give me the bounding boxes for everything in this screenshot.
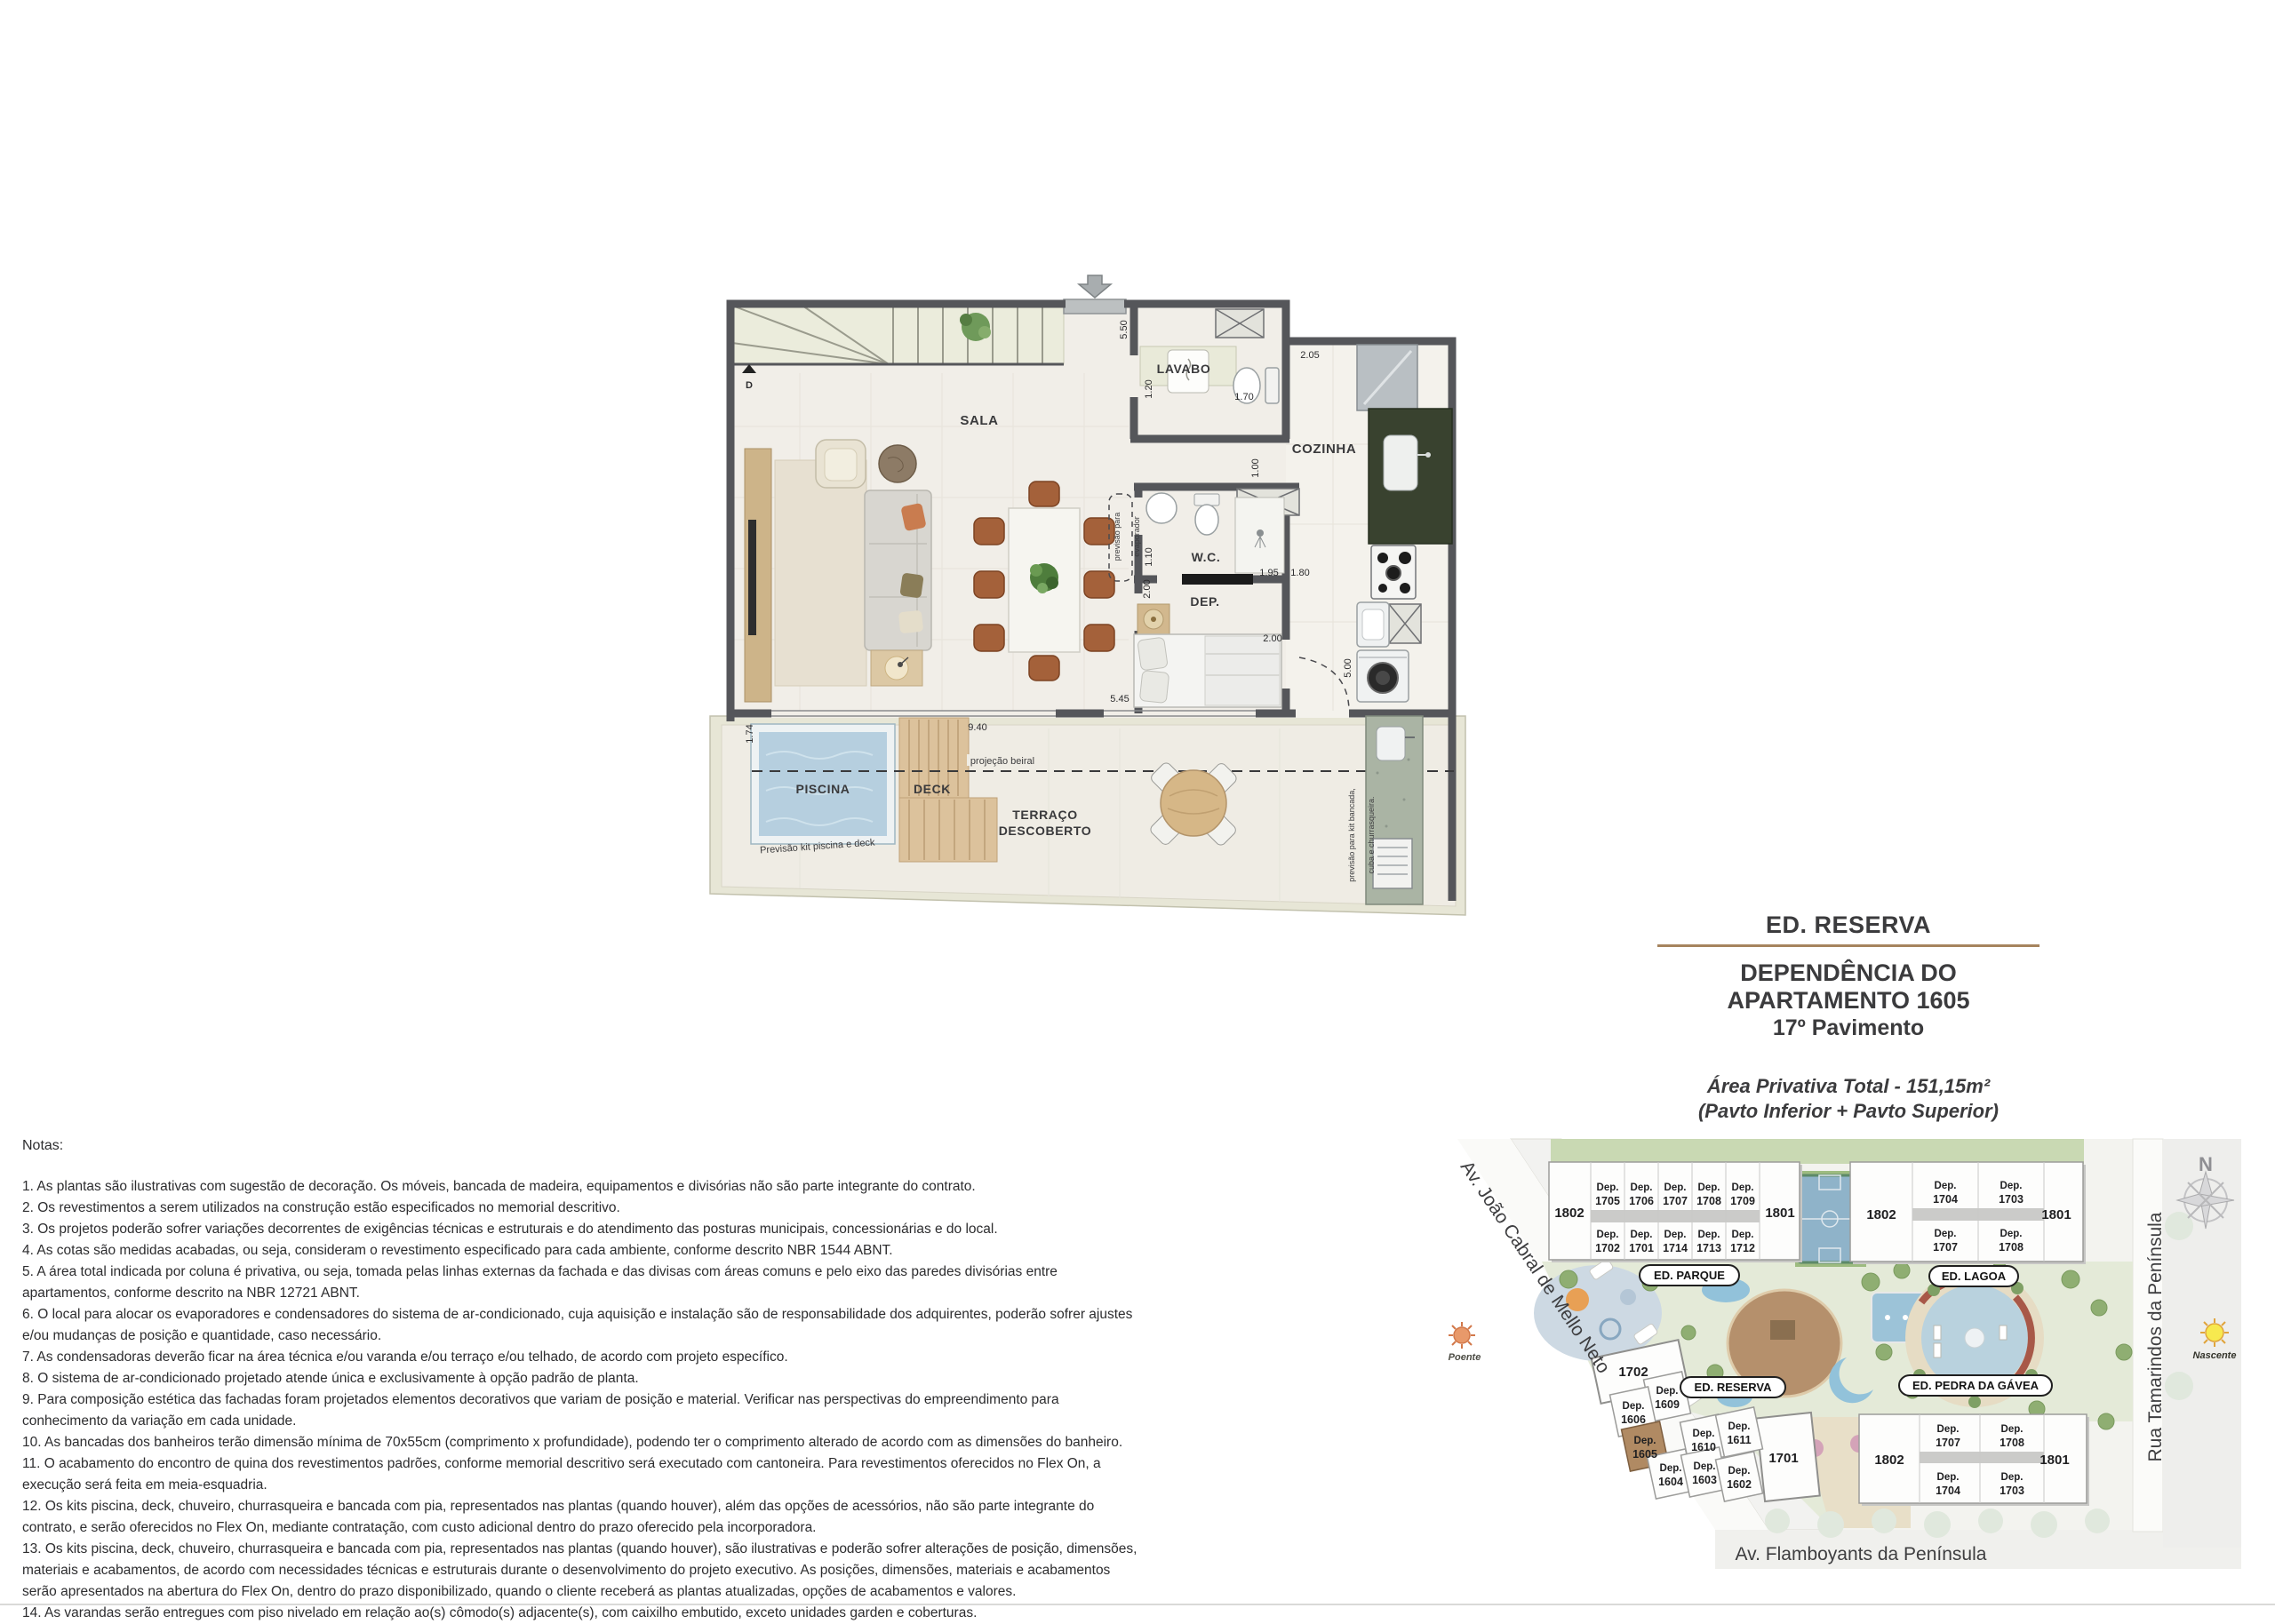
label-ed-parque: ED. PARQUE <box>1654 1269 1725 1282</box>
dep-prefix: Dep. <box>1656 1386 1679 1397</box>
note-item: 13. Os kits piscina, deck, chuveiro, chu… <box>22 1539 1140 1603</box>
room-label-dep: DEP. <box>1190 594 1219 609</box>
dep-prefix: Dep. <box>1937 1424 1960 1435</box>
dim-200a: 2.00 <box>1142 579 1153 598</box>
bbq-note-line2: cuba e churrasqueira. <box>1367 796 1376 873</box>
site-map: 1802 1801 Dep. 1705 Dep. 1706 Dep. 1707 … <box>1422 1128 2275 1609</box>
floorplan-sheet: { "colors": { "wall": "#55565a", "floor"… <box>0 0 2275 1609</box>
dep-prefix: Dep. <box>2000 1181 2023 1191</box>
entry-landing <box>1064 299 1126 314</box>
notes-block: Notas: 1. As plantas são ilustrativas co… <box>22 1135 1140 1624</box>
dep-prefix: Dep. <box>2001 1472 2024 1483</box>
dim-205: 2.05 <box>1300 350 1319 361</box>
unit-dep-1704-pedra: 1704 <box>1936 1485 1960 1497</box>
building-parque: 1802 1801 Dep. 1705 Dep. 1706 Dep. 1707 … <box>1549 1162 1802 1262</box>
label-ed-reserva: ED. RESERVA <box>1695 1381 1773 1394</box>
unit-1701-reserva: 1701 <box>1768 1451 1798 1466</box>
title-rule <box>1657 944 2040 947</box>
title-line2: APARTAMENTO 1605 <box>1644 987 2053 1015</box>
unit-dep-1606: 1606 <box>1621 1413 1646 1426</box>
street-label-east: Rua Tamarindos da Península <box>2145 1212 2166 1461</box>
dim-545: 5.45 <box>1110 694 1129 705</box>
dep-prefix: Dep. <box>1937 1472 1960 1483</box>
unit-dep-1703-lagoa: 1703 <box>1999 1193 2024 1206</box>
dep-prefix: Dep. <box>1935 1229 1957 1239</box>
note-item: 3. Os projetos poderão sofrer variações … <box>22 1219 1140 1240</box>
notes-heading: Notas: <box>22 1135 1140 1157</box>
title-line3: 17º Pavimento <box>1644 1015 2053 1042</box>
bbq-note-line1: previsão para kit bancada, <box>1347 788 1356 882</box>
sun-west-label: Poente <box>1449 1352 1481 1363</box>
private-area: Área Privativa Total - 151,15m² <box>1644 1074 2053 1099</box>
unit-dep-1701: 1701 <box>1629 1242 1654 1254</box>
unit-dep-1708-pedra: 1708 <box>2000 1437 2024 1449</box>
unit-1802-parque: 1802 <box>1554 1206 1584 1221</box>
unit-dep-1708: 1708 <box>1696 1195 1721 1207</box>
room-label-terraco-2: DESCOBERTO <box>999 824 1092 838</box>
unit-dep-1712: 1712 <box>1730 1242 1755 1254</box>
room-label-piscina: PISCINA <box>796 782 850 796</box>
dep-prefix: Dep. <box>1631 1182 1653 1193</box>
dep-prefix: Dep. <box>1698 1230 1720 1240</box>
evaporator-note-line1: previsão para <box>1113 513 1122 561</box>
unit-dep-1609: 1609 <box>1655 1398 1680 1411</box>
label-ed-lagoa: ED. LAGOA <box>1942 1270 2007 1283</box>
unit-dep-1709: 1709 <box>1730 1195 1755 1207</box>
dim-100: 1.00 <box>1250 458 1261 477</box>
room-label-cozinha: COZINHA <box>1292 442 1357 457</box>
unit-dep-1706: 1706 <box>1629 1195 1654 1207</box>
dim-120: 1.20 <box>1144 379 1154 398</box>
unit-dep-1603: 1603 <box>1692 1474 1717 1486</box>
dep-prefix: Dep. <box>1728 1421 1751 1432</box>
dep-prefix: Dep. <box>2000 1229 2023 1239</box>
unit-1801-parque: 1801 <box>1765 1206 1794 1221</box>
building-lagoa: 1802 1801 Dep. 1704 Dep. 1703 Dep. 1707 … <box>1850 1162 2086 1264</box>
floor-plan: previsão para evaporador projeção beiral <box>706 267 1471 928</box>
unit-dep-1610: 1610 <box>1691 1441 1716 1453</box>
note-item: 2. Os revestimentos a serem utilizados n… <box>22 1198 1140 1219</box>
unit-1801-pedra: 1801 <box>2040 1453 2069 1468</box>
dim-195: 1.95 <box>1259 568 1278 578</box>
unit-dep-1705: 1705 <box>1595 1195 1620 1207</box>
unit-1802-pedra: 1802 <box>1874 1453 1904 1468</box>
dim-940: 9.40 <box>968 722 986 733</box>
dep-prefix: Dep. <box>1728 1466 1751 1477</box>
dep-prefix: Dep. <box>1935 1181 1957 1191</box>
unit-dep-1713: 1713 <box>1696 1242 1721 1254</box>
unit-dep-1702: 1702 <box>1595 1242 1620 1254</box>
note-item: 7. As condensadoras deverão ficar na áre… <box>22 1347 1140 1368</box>
dim-500: 5.00 <box>1343 658 1353 677</box>
note-item: 4. As cotas são medidas acabadas, ou sej… <box>22 1240 1140 1262</box>
note-item: 9. Para composição estética das fachadas… <box>22 1389 1140 1432</box>
dep-prefix: Dep. <box>1664 1230 1687 1240</box>
note-item: 5. A área total indicada por coluna é pr… <box>22 1262 1140 1304</box>
note-item: 1. As plantas são ilustrativas com suges… <box>22 1176 1140 1198</box>
unit-1702-reserva: 1702 <box>1618 1365 1648 1380</box>
stair-direction-label: D <box>746 380 753 391</box>
dep-prefix: Dep. <box>1597 1230 1619 1240</box>
unit-dep-1611: 1611 <box>1727 1434 1751 1446</box>
title-block: ED. RESERVA DEPENDÊNCIA DO APARTAMENTO 1… <box>1644 912 2053 1124</box>
street-label-south: Av. Flamboyants da Península <box>1736 1544 1987 1564</box>
beiral-label: projeção beiral <box>970 756 1034 767</box>
note-item: 14. As varandas serão entregues com piso… <box>22 1603 1140 1624</box>
note-item: 12. Os kits piscina, deck, chuveiro, chu… <box>22 1496 1140 1539</box>
note-item: 6. O local para alocar os evaporadores e… <box>22 1304 1140 1347</box>
title-line1: DEPENDÊNCIA DO <box>1644 959 2053 987</box>
unit-dep-1708-lagoa: 1708 <box>1999 1241 2024 1254</box>
dim-550: 5.50 <box>1119 320 1130 338</box>
dim-110: 1.10 <box>1144 547 1154 566</box>
unit-dep-1602: 1602 <box>1727 1478 1752 1491</box>
dim-170: 1.70 <box>1234 392 1253 402</box>
unit-1801-lagoa: 1801 <box>2041 1207 2071 1222</box>
unit-dep-1707-pedra: 1707 <box>1936 1437 1960 1449</box>
unit-dep-1704-lagoa: 1704 <box>1933 1193 1958 1206</box>
room-label-sala: SALA <box>960 413 998 428</box>
room-label-terraco-1: TERRAÇO <box>1012 808 1077 822</box>
sun-west-icon: Poente <box>1449 1322 1481 1363</box>
dep-prefix: Dep. <box>1694 1461 1716 1472</box>
building-name: ED. RESERVA <box>1644 912 2053 939</box>
note-item: 8. O sistema de ar-condicionado projetad… <box>22 1368 1140 1389</box>
sun-east-label: Nascente <box>2193 1350 2237 1361</box>
page-bottom-rule <box>0 1604 2275 1605</box>
dep-prefix: Dep. <box>1660 1463 1682 1474</box>
room-label-lavabo: LAVABO <box>1157 362 1211 376</box>
unit-dep-1707-lagoa: 1707 <box>1933 1241 1958 1254</box>
room-label-deck: DECK <box>914 782 951 796</box>
entry-arrow-icon <box>1079 275 1111 298</box>
unit-dep-1604: 1604 <box>1658 1476 1683 1488</box>
unit-dep-1703-pedra: 1703 <box>2000 1485 2024 1497</box>
evaporator-note-line2: evaporador <box>1132 516 1141 557</box>
dep-prefix: Dep. <box>1597 1182 1619 1193</box>
dep-prefix: Dep. <box>1732 1182 1754 1193</box>
note-item: 10. As bancadas dos banheiros terão dime… <box>22 1432 1140 1453</box>
dim-180: 1.80 <box>1290 568 1309 578</box>
label-ed-pedra: ED. PEDRA DA GÁVEA <box>1912 1379 2040 1392</box>
note-item: 11. O acabamento do encontro de quina do… <box>22 1453 1140 1496</box>
stairs <box>730 304 1064 364</box>
dep-prefix: Dep. <box>1693 1429 1715 1439</box>
unit-1802-lagoa: 1802 <box>1866 1207 1896 1222</box>
building-pedra: 1802 1801 Dep. 1707 Dep. 1708 Dep. 1704 … <box>1859 1414 2089 1506</box>
dep-prefix: Dep. <box>2001 1424 2024 1435</box>
room-label-wc: W.C. <box>1192 550 1221 564</box>
dep-prefix: Dep. <box>1634 1436 1656 1446</box>
terrace-table-set <box>1148 760 1238 847</box>
doormat <box>1182 574 1253 585</box>
dim-200b: 2.00 <box>1263 633 1281 644</box>
dep-prefix: Dep. <box>1698 1182 1720 1193</box>
dep-prefix: Dep. <box>1631 1230 1653 1240</box>
dep-prefix: Dep. <box>1732 1230 1754 1240</box>
unit-dep-1714: 1714 <box>1663 1242 1688 1254</box>
dep-prefix: Dep. <box>1664 1182 1687 1193</box>
dep-prefix: Dep. <box>1623 1401 1645 1412</box>
private-area-detail: (Pavto Inferior + Pavto Superior) <box>1644 1099 2053 1124</box>
unit-dep-1605: 1605 <box>1632 1448 1657 1461</box>
dim-174: 1.74 <box>745 724 755 743</box>
unit-dep-1707: 1707 <box>1663 1195 1688 1207</box>
